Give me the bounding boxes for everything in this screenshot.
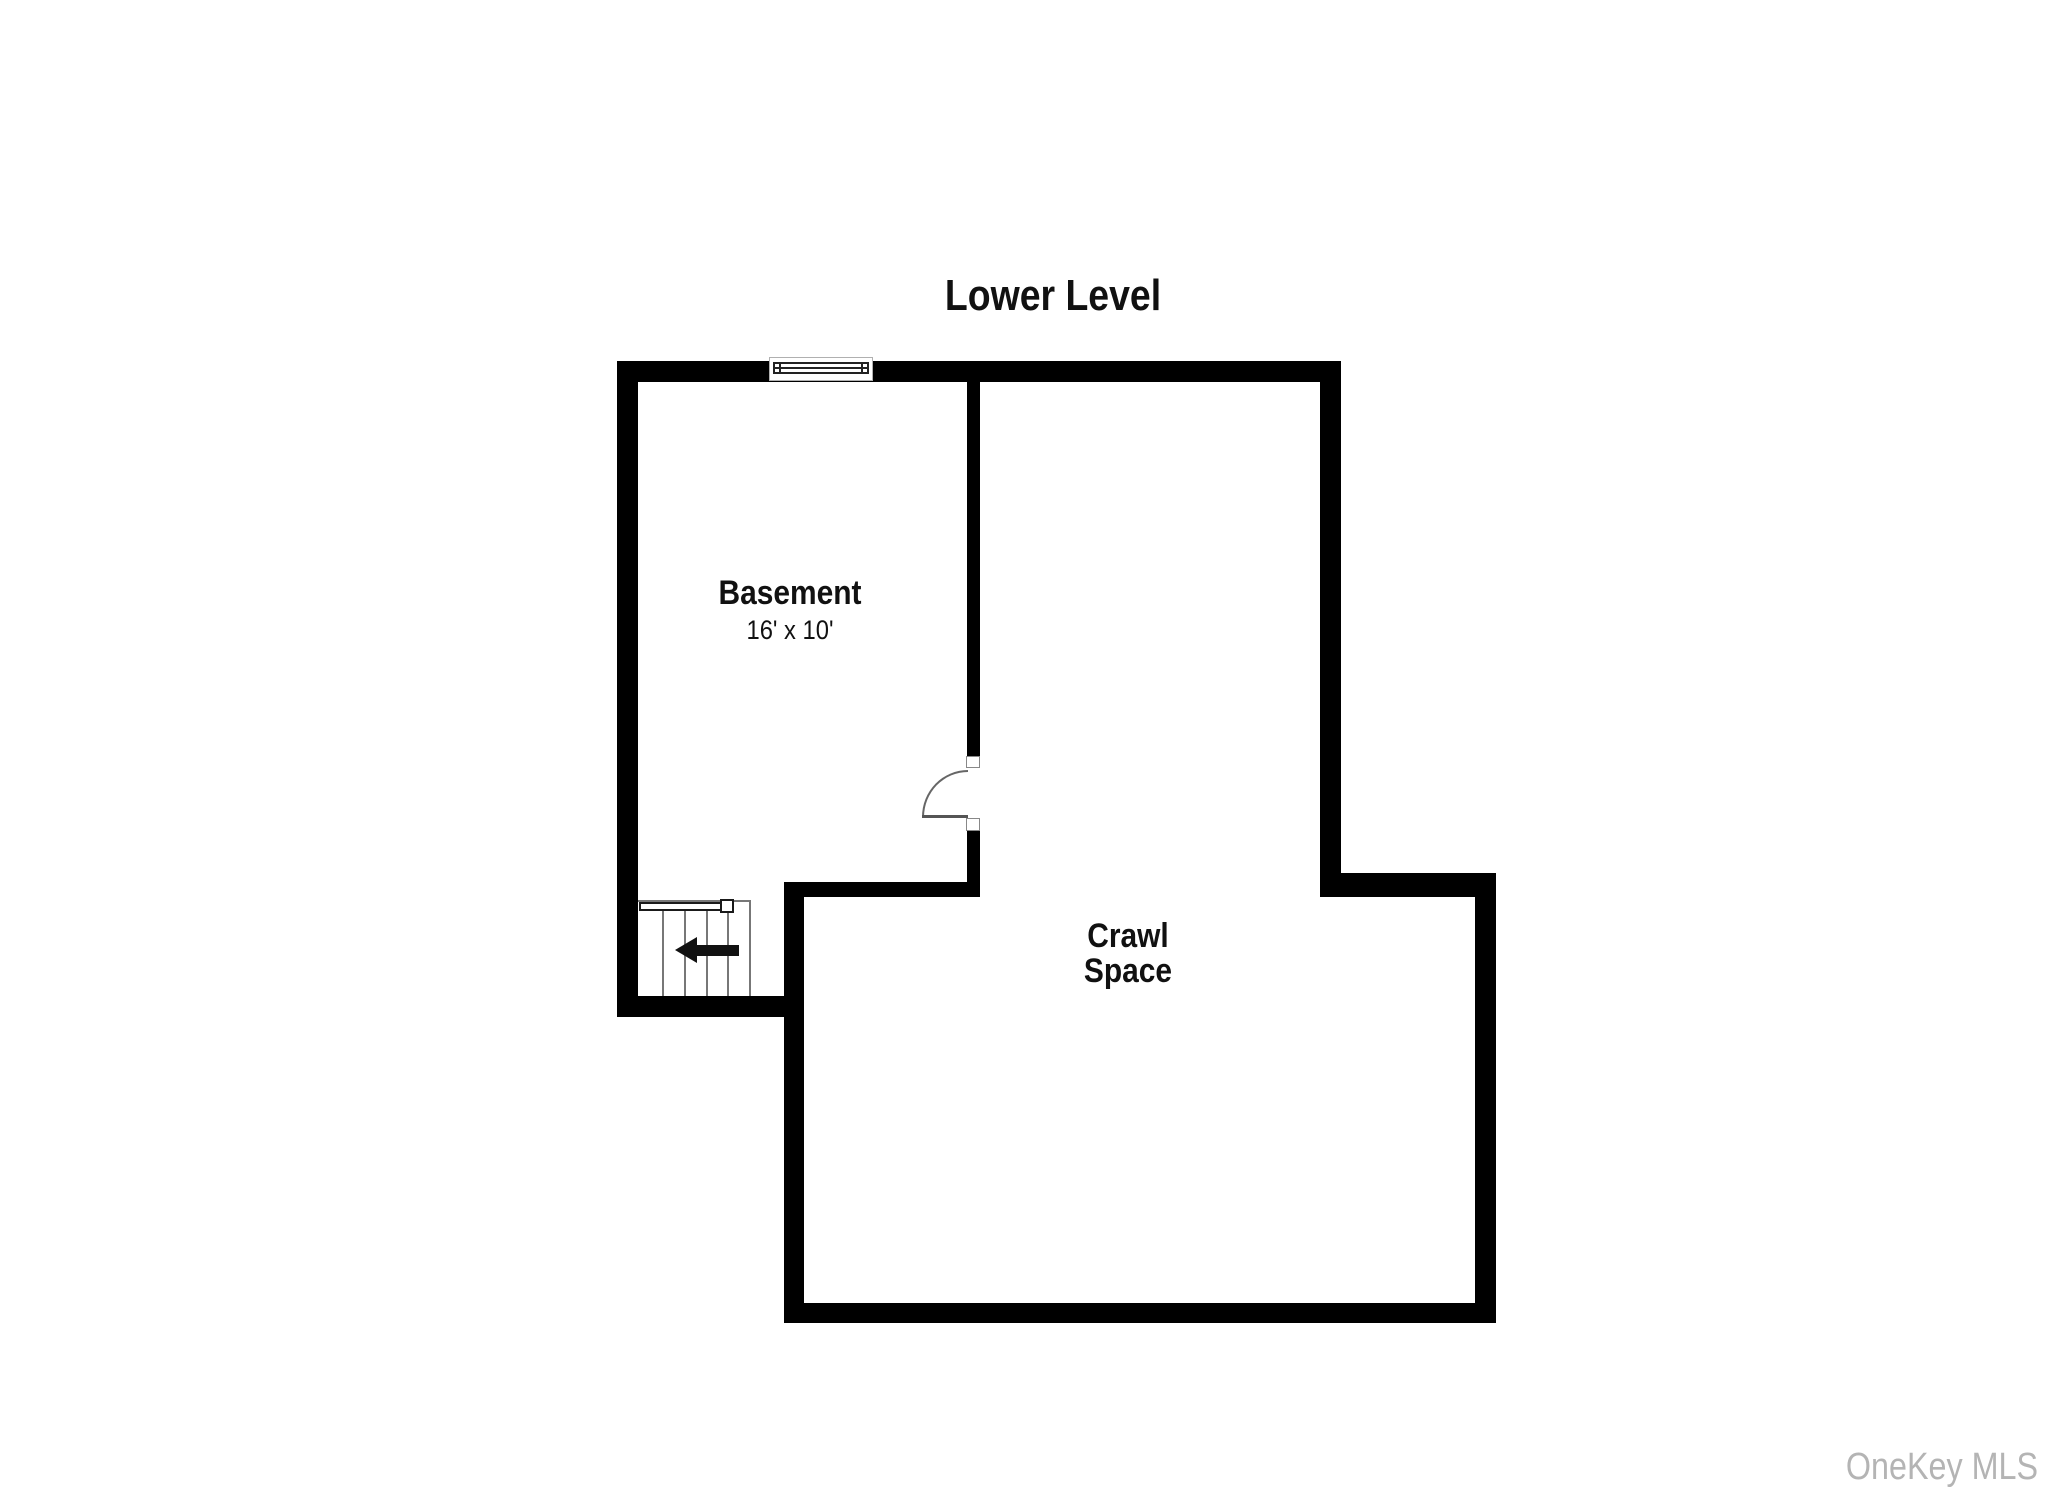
room-label-crawl-space: Crawl Space xyxy=(1043,919,1213,989)
room-label-basement: Basement 16' x 10' xyxy=(640,572,940,646)
window-mullion-left xyxy=(779,362,781,374)
window-glass-line xyxy=(775,367,867,369)
floorplan-canvas: Lower Level Basement 16' x 10' Crawl Spa… xyxy=(0,0,2048,1489)
door-leaf xyxy=(922,815,968,818)
wall-divider-lower xyxy=(967,830,980,897)
wall-right-exterior-upper xyxy=(1320,361,1341,897)
stair-direction-arrow-shaft xyxy=(696,945,739,956)
door-jamb-top xyxy=(966,756,980,768)
wall-top-exterior xyxy=(617,361,1341,382)
wall-divider-upper xyxy=(967,382,980,757)
basement-dimensions: 16' x 10' xyxy=(658,614,922,646)
wall-crawlspace-west xyxy=(784,882,804,1323)
wall-basement-south xyxy=(784,882,980,897)
basement-name: Basement xyxy=(658,572,922,614)
stair-handrail xyxy=(639,902,724,911)
watermark: OneKey MLS xyxy=(1846,1446,2038,1489)
wall-stairwell-south xyxy=(617,996,804,1017)
stair-direction-arrow-head xyxy=(675,937,697,963)
wall-bottom-exterior xyxy=(784,1303,1496,1323)
crawl-space-name: Crawl Space xyxy=(1053,919,1203,989)
door-swing-arc-icon xyxy=(922,770,968,817)
wall-right-exterior-lower xyxy=(1475,873,1496,1323)
door-jamb-bottom xyxy=(966,818,980,831)
wall-left-exterior xyxy=(617,361,638,1016)
stair-tread xyxy=(662,903,664,996)
stair-newel-post xyxy=(720,899,734,913)
plan-title: Lower Level xyxy=(883,272,1223,320)
wall-step-exterior xyxy=(1320,873,1496,897)
window-mullion-right xyxy=(861,362,863,374)
